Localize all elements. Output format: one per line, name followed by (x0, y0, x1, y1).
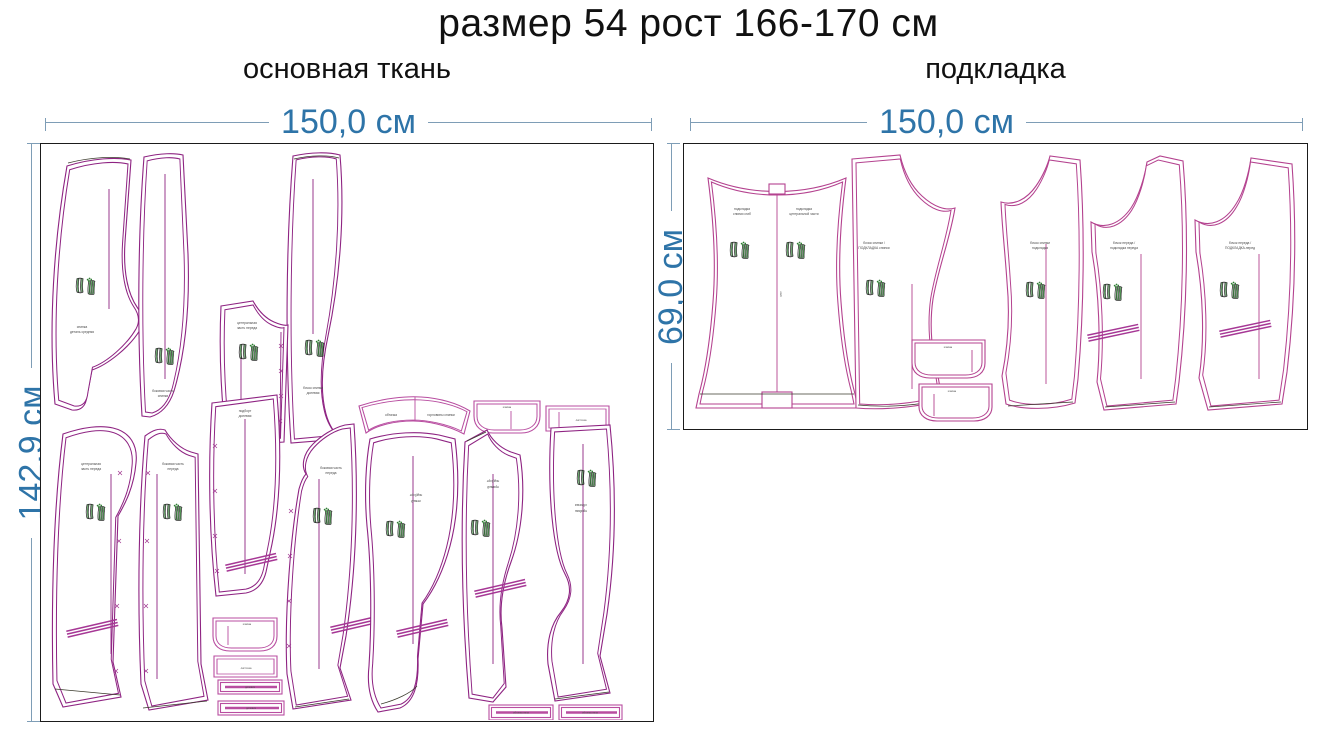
piece-back-lining-fold: подкладка спинки сгиб подкладка централь… (696, 178, 858, 408)
dim-line (671, 143, 672, 211)
dim-line (690, 122, 867, 123)
piece-label: левый (411, 499, 421, 503)
piece-label: подборт (486, 479, 499, 483)
piece-label: долевик (245, 686, 256, 689)
piece-neck-yoke: обтачка горловины спинки (359, 397, 470, 434)
piece-label: долевик (246, 707, 257, 710)
piece-label: часть переда (237, 326, 257, 330)
piece-flap: клапан (213, 618, 277, 651)
piece-pocket-welt: листочка (214, 656, 277, 677)
page-title: размер 54 рост 166-170 см (60, 2, 1317, 46)
dim-line (45, 122, 269, 123)
piece-under-facing-right: подборт правый (462, 430, 526, 702)
lining-svg: подкладка спинки сгиб подкладка централь… (684, 144, 1306, 428)
piece-side-lining: бочок спинки подкладка (1001, 156, 1083, 408)
piece-label: бочок спинки (303, 386, 323, 390)
dim-line (1026, 122, 1303, 123)
piece-label: правый (487, 485, 499, 489)
piece-label: горловины спинки (427, 413, 455, 417)
lining-marker: подкладка спинки сгиб подкладка централь… (683, 143, 1308, 430)
piece-flap-lining-1: клапан (912, 340, 985, 378)
piece-label: долевая (239, 414, 252, 418)
dim-line (671, 363, 672, 431)
piece-label: подкладка (796, 207, 812, 211)
piece-label: листочка (241, 667, 252, 670)
piece-label: спинка (77, 325, 88, 329)
main-fabric-svg: спинка деталь средняя боковая часть спин… (41, 144, 652, 720)
piece-label: боковая часть (152, 389, 174, 393)
piece-strip-3: обтачка низа (489, 705, 553, 720)
piece-label: подкладка (734, 207, 750, 211)
piece-flap-lining-2: клапан (919, 384, 992, 421)
piece-center-back: спинка деталь средняя (52, 157, 142, 410)
dim-main-width: 150,0 см (45, 104, 652, 140)
piece-label: спинки сгиб (733, 212, 751, 216)
lining-subtitle: подкладка (683, 53, 1308, 86)
dim-line (31, 538, 32, 722)
dim-lining-width-label: 150,0 см (879, 105, 1014, 139)
main-fabric-marker: спинка деталь средняя боковая часть спин… (40, 143, 654, 722)
piece-label: центральная (81, 462, 101, 466)
piece-label: бочок переда / (1229, 241, 1251, 245)
piece-label: бочок спинки / (863, 241, 885, 245)
piece-armhole-facing: обтачка проймы (548, 425, 615, 701)
piece-pocket-flap-small: клапан (474, 401, 540, 433)
piece-label: подкладка (1032, 246, 1048, 250)
piece-front-left: центральная часть переда (52, 427, 136, 707)
dim-line (31, 143, 32, 368)
piece-label: бочок спинки (1030, 241, 1050, 245)
piece-label: спинки (158, 394, 169, 398)
piece-label: обтачка низа (513, 711, 529, 715)
piece-strip-2: долевик (218, 701, 284, 715)
piece-strip-4: обтачка низа (559, 705, 622, 720)
piece-label: переда (168, 467, 179, 471)
piece-label: обтачка (385, 413, 397, 417)
piece-label: подборт (239, 409, 252, 413)
piece-label: ПОДКЛАДКА спинки (858, 246, 889, 250)
piece-label: клапан (948, 390, 957, 393)
piece-label: долевая (307, 391, 320, 395)
piece-label: подборт (409, 493, 422, 497)
piece-label: часть переда (81, 467, 101, 471)
fold-label: сгиб (779, 291, 783, 297)
piece-side-front: подборт долевая (210, 395, 280, 596)
piece-strip-1: долевик (218, 680, 282, 694)
piece-label: обтачка низа (582, 711, 598, 715)
piece-front-lining-2: бочок переда / ПОДКЛАДКА-перед (1195, 158, 1295, 410)
piece-front-right: боковая часть переда (139, 429, 208, 710)
piece-label: клапан (944, 346, 953, 349)
piece-label: бочок переда / (1113, 241, 1135, 245)
piece-side-back: боковая часть спинки (139, 154, 189, 417)
piece-label: центральной части (789, 212, 818, 216)
piece-label: подкладка переда (1110, 246, 1138, 250)
piece-label: ПОДКЛАДКА-перед (1225, 246, 1255, 250)
main-fabric-subtitle: основная ткань (40, 53, 654, 86)
piece-label: листочка (576, 419, 587, 422)
piece-label: проймы (574, 509, 587, 513)
dim-lining-width: 150,0 см (690, 104, 1303, 140)
dim-line (428, 122, 652, 123)
piece-label: клапан (243, 623, 252, 626)
piece-under-facing-left: подборт левый (366, 433, 458, 712)
piece-label: центральная (237, 321, 257, 325)
pattern-layout-sheet: размер 54 рост 166-170 см основная ткань… (0, 0, 1317, 731)
piece-label: клапан (503, 406, 512, 409)
piece-label: боковая часть (162, 462, 184, 466)
piece-label: переда (326, 471, 337, 475)
piece-side-back-2: бочок спинки долевая (287, 153, 342, 443)
piece-label: деталь средняя (70, 330, 94, 334)
piece-label: обтачка (575, 503, 587, 507)
piece-label: боковая часть (320, 466, 342, 470)
dim-main-width-label: 150,0 см (281, 105, 416, 139)
piece-front-lining-1: бочок переда / подкладка переда (1087, 156, 1186, 410)
